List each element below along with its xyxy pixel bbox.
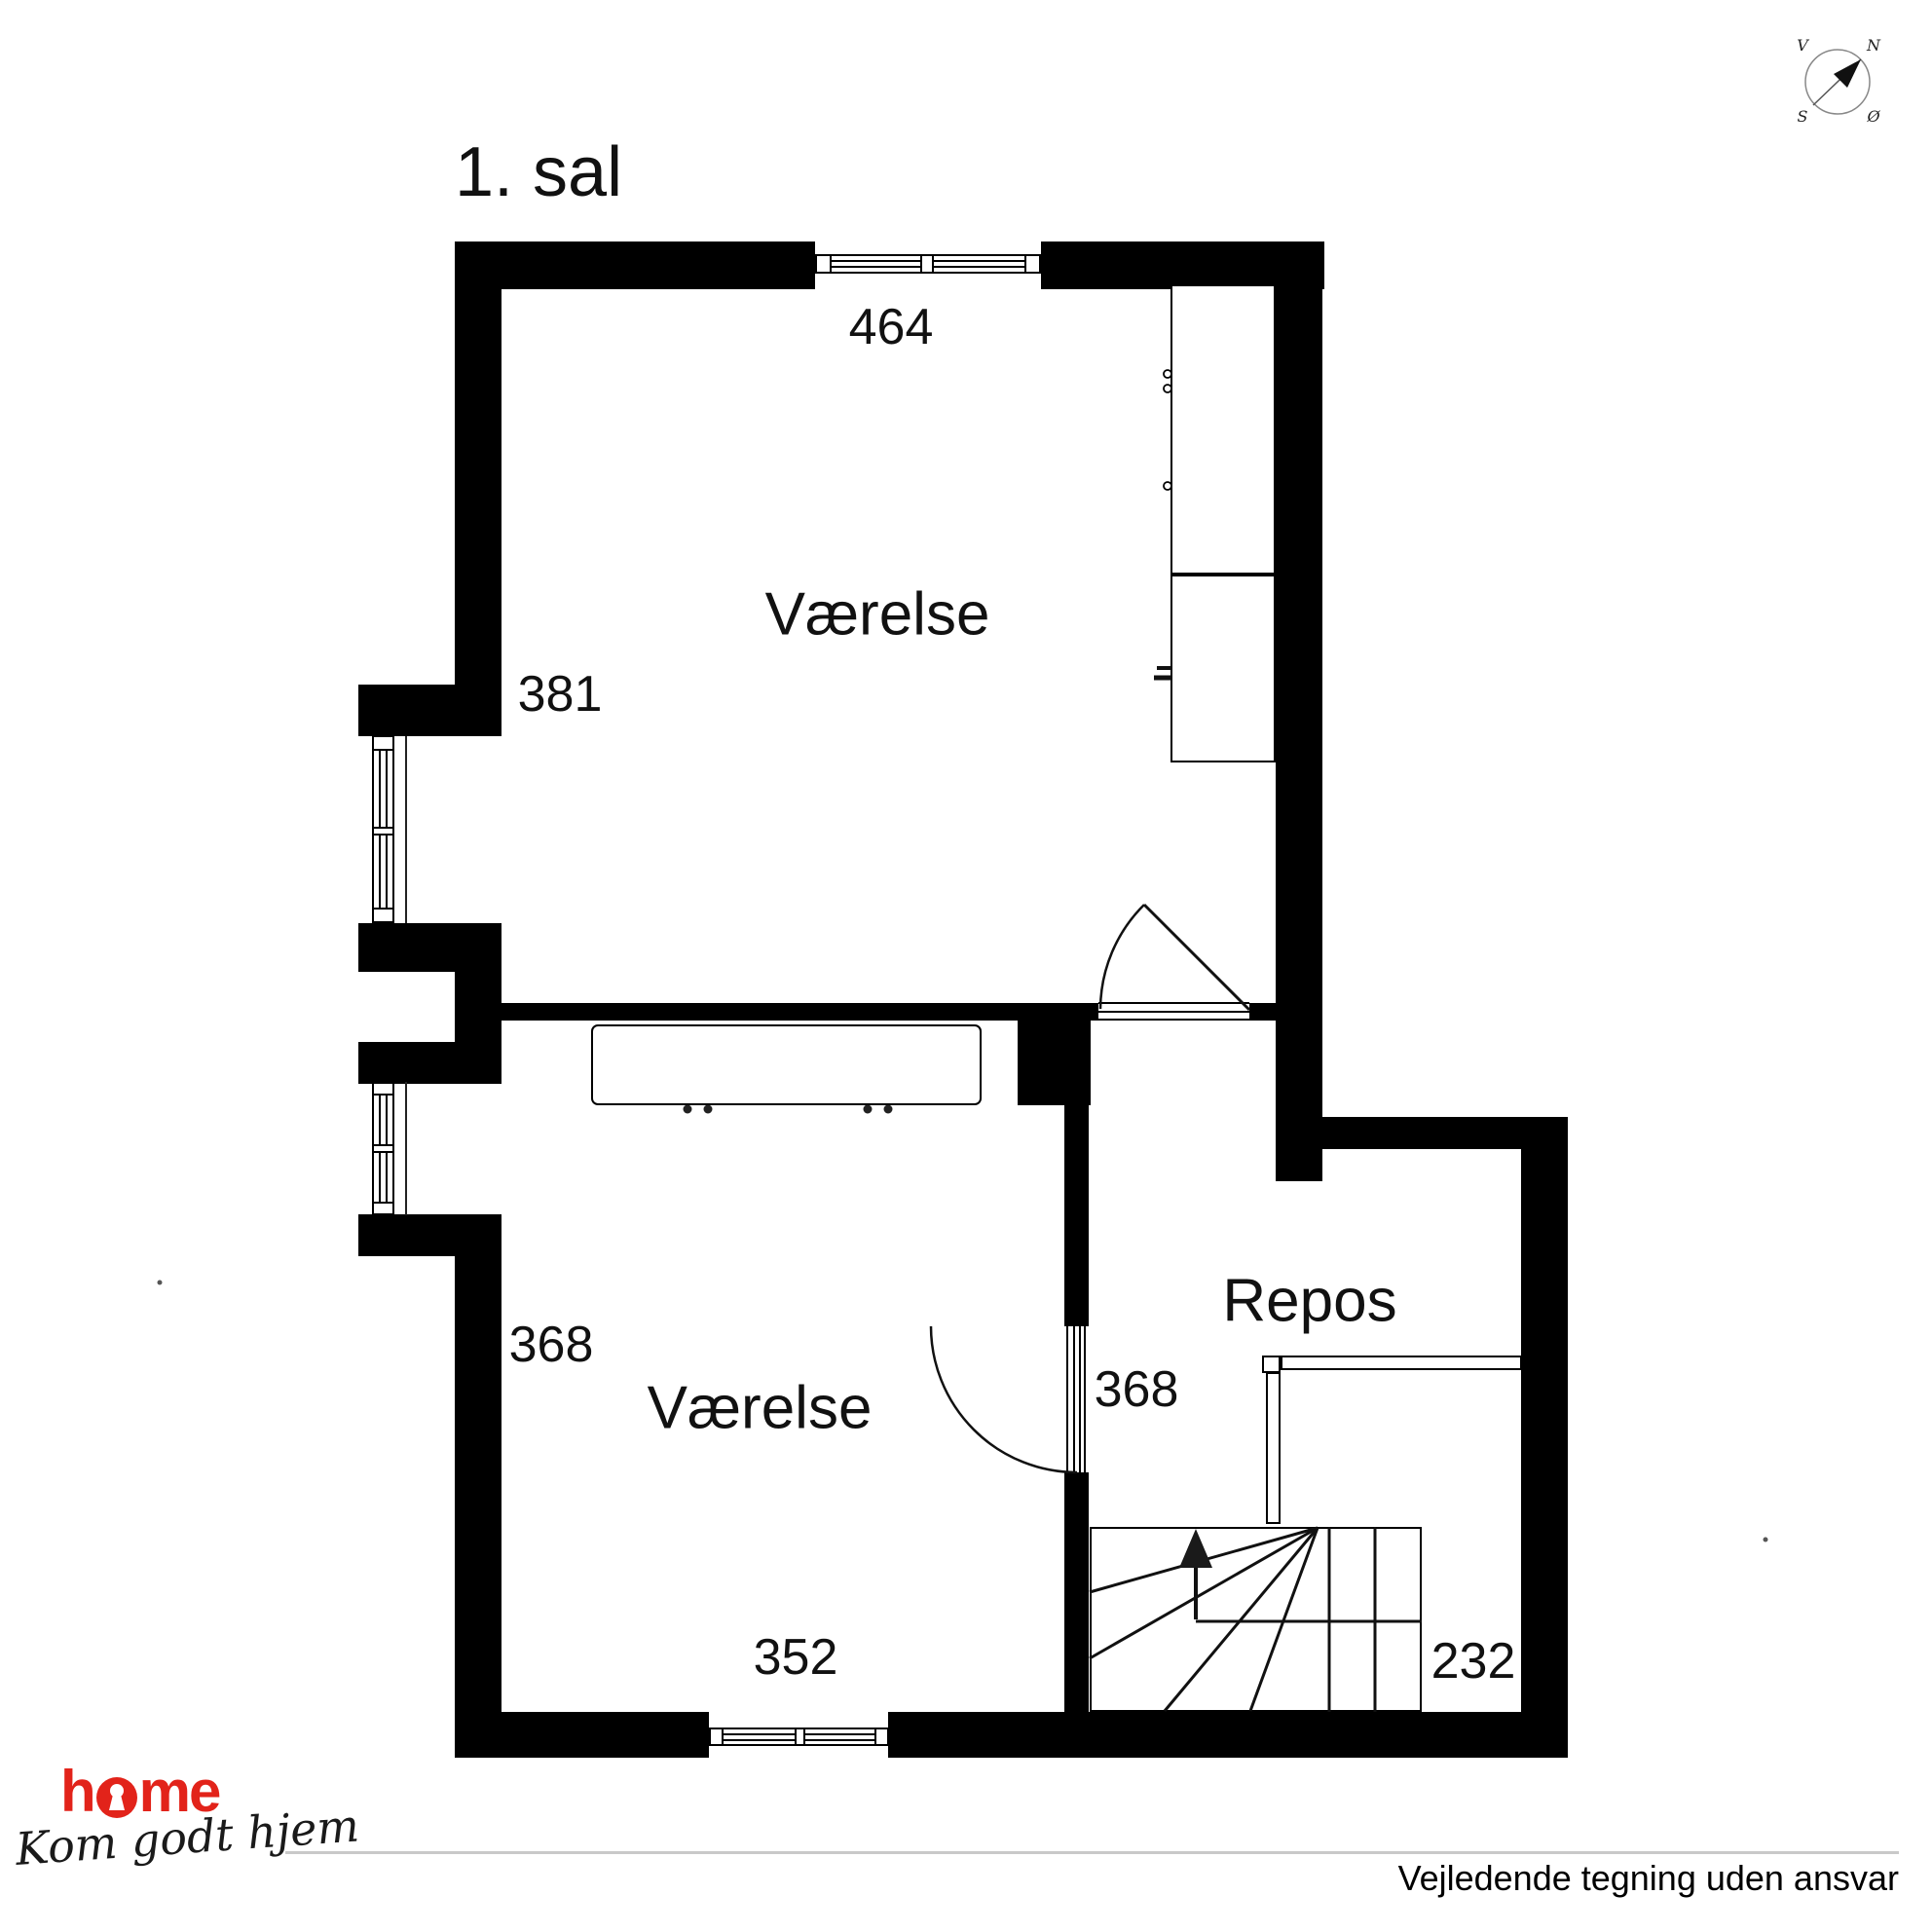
- dimension-bottom-width: 352: [754, 1628, 838, 1687]
- compass-label-south: S: [1798, 107, 1808, 126]
- wardrobe-knob-icon: [1164, 482, 1171, 490]
- door-top-swing-arc: [1100, 905, 1144, 1009]
- dimension-upper-left-height: 381: [518, 665, 603, 724]
- floor-plan-page: 1. sal: [0, 0, 1932, 1932]
- wardrobe-knob-icon: [1164, 385, 1171, 392]
- speck: [1764, 1538, 1768, 1542]
- speck: [158, 1281, 163, 1285]
- dimension-top-width: 464: [849, 298, 934, 356]
- room-label-top: Værelse: [765, 580, 990, 650]
- compass-label-east: Ø: [1866, 107, 1880, 126]
- dresser-knob-icon: [684, 1105, 692, 1114]
- room-label-bottom: Værelse: [648, 1374, 873, 1443]
- compass-icon: V N S Ø: [1797, 36, 1881, 126]
- dresser-knob-icon: [884, 1105, 893, 1114]
- wardrobe-knob-icon: [1164, 370, 1171, 378]
- dimension-stair-width: 232: [1431, 1632, 1516, 1690]
- brand-logo-text-h: h: [60, 1763, 94, 1821]
- compass-label-west: V: [1797, 36, 1809, 55]
- dimension-door-width: 368: [1095, 1360, 1179, 1419]
- stair-winder-line: [1250, 1528, 1318, 1711]
- disclaimer-text: Vejledende tegning uden ansvar: [1398, 1858, 1899, 1899]
- door-bottom-swing-arc: [931, 1326, 1077, 1472]
- stair-arrow-head-icon: [1179, 1529, 1212, 1568]
- door-top-leaf: [1144, 905, 1249, 1010]
- room-label-landing: Repos: [1222, 1267, 1396, 1336]
- dresser-knob-icon: [704, 1105, 713, 1114]
- plan-vector-overlay: V N S Ø: [0, 0, 1932, 1932]
- compass-label-north: N: [1866, 36, 1881, 55]
- compass-needle-icon: [1834, 59, 1861, 88]
- dimension-lower-left-height: 368: [509, 1316, 594, 1374]
- keyhole-icon: [95, 1776, 138, 1819]
- dresser-knob-icon: [864, 1105, 873, 1114]
- footer-divider: [285, 1851, 1899, 1854]
